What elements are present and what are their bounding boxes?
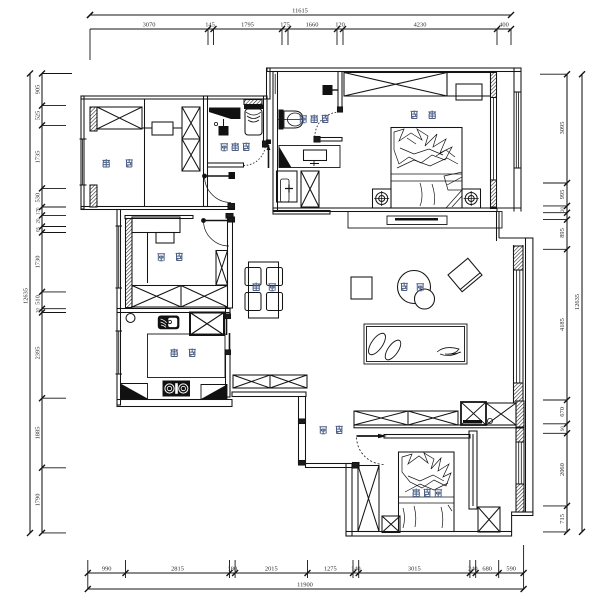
svg-text:20: 20 — [561, 207, 566, 213]
svg-text:140: 140 — [351, 566, 361, 573]
svg-text:4185: 4185 — [559, 318, 566, 331]
svg-text:400: 400 — [499, 22, 509, 29]
svg-text:530: 530 — [35, 193, 42, 203]
svg-text:4230: 4230 — [414, 22, 427, 29]
svg-text:12635: 12635 — [23, 288, 30, 304]
svg-text:2815: 2815 — [171, 566, 184, 573]
svg-text:11615: 11615 — [292, 8, 308, 15]
svg-text:895: 895 — [559, 228, 566, 238]
svg-text:715: 715 — [559, 514, 566, 524]
svg-text:1660: 1660 — [306, 22, 319, 29]
svg-text:20: 20 — [37, 218, 42, 224]
svg-text:1795: 1795 — [241, 22, 254, 29]
svg-text:175: 175 — [280, 22, 290, 29]
svg-text:145: 145 — [205, 22, 215, 29]
svg-text:240: 240 — [468, 566, 478, 573]
svg-text:05: 05 — [37, 227, 42, 233]
svg-text:20: 20 — [37, 308, 42, 314]
svg-text:525: 525 — [35, 111, 42, 121]
svg-text:1735: 1735 — [35, 151, 42, 164]
svg-text:2060: 2060 — [559, 463, 566, 476]
svg-text:905: 905 — [35, 85, 42, 95]
svg-text:3095: 3095 — [559, 122, 566, 135]
svg-text:670: 670 — [559, 407, 566, 417]
svg-text:680: 680 — [482, 566, 492, 573]
svg-text:990: 990 — [102, 566, 112, 573]
svg-text:1790: 1790 — [35, 494, 42, 507]
svg-text:2015: 2015 — [265, 566, 278, 573]
svg-text:1275: 1275 — [324, 566, 337, 573]
svg-text:90: 90 — [561, 426, 566, 432]
svg-text:2395: 2395 — [35, 347, 42, 360]
svg-text:11900: 11900 — [297, 582, 313, 589]
svg-text:12635: 12635 — [574, 294, 581, 310]
svg-text:3070: 3070 — [143, 22, 156, 29]
svg-text:170: 170 — [37, 207, 42, 215]
svg-text:995: 995 — [559, 190, 566, 200]
svg-text:120: 120 — [335, 22, 345, 29]
svg-text:590: 590 — [506, 566, 516, 573]
svg-text:1730: 1730 — [35, 256, 42, 269]
svg-text:1885: 1885 — [35, 427, 42, 440]
svg-text:510: 510 — [35, 295, 42, 305]
svg-text:180: 180 — [228, 566, 238, 573]
svg-text:3015: 3015 — [408, 566, 421, 573]
